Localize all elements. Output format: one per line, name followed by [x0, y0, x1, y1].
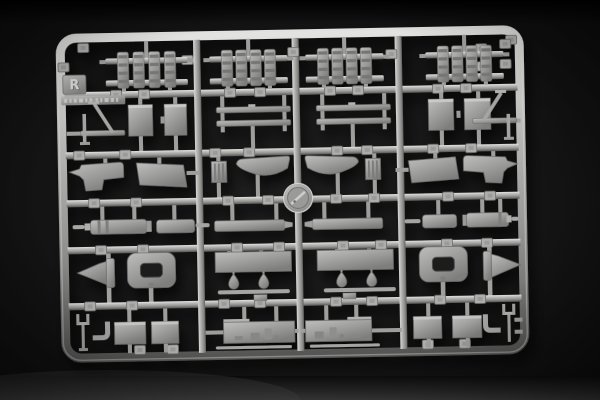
sprue-photo-canvas: R R: [0, 0, 600, 400]
vignette-overlay: [0, 0, 600, 400]
photo-of-model-kit-sprue: R R: [0, 0, 600, 400]
